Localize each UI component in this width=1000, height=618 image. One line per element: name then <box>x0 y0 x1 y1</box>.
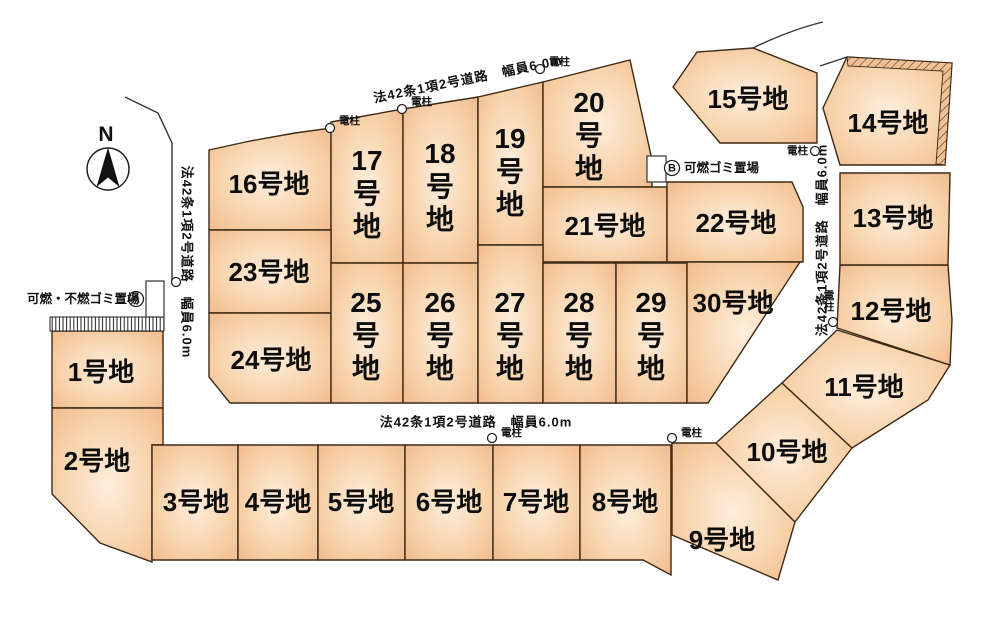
plot-25-label: 25号地 <box>350 287 381 384</box>
utility-pole-label: 電柱 <box>681 426 702 439</box>
plot-23-label: 23号地 <box>229 257 310 287</box>
garbage-station-label: 可燃ゴミ置場 <box>684 160 760 175</box>
utility-pole-label: 電柱 <box>824 290 835 313</box>
compass-north-label: N <box>98 123 113 146</box>
plot-1-label: 1号地 <box>68 357 134 387</box>
site-plan-map: 1号地2号地3号地4号地5号地6号地7号地8号地9号地10号地11号地12号地1… <box>0 0 1000 618</box>
plot-16-label: 16号地 <box>229 169 310 199</box>
utility-pole-label: 電柱 <box>549 55 570 68</box>
utility-pole-3: 電柱 <box>787 144 820 157</box>
plot-28-label: 28号地 <box>563 287 594 384</box>
utility-pole-icon <box>172 278 181 287</box>
utility-pole-label: 電柱 <box>339 114 360 127</box>
plot-22-label: 22号地 <box>696 208 777 238</box>
plot-29-label: 29号地 <box>635 287 666 384</box>
plot-24-label: 24号地 <box>231 345 312 375</box>
utility-pole-icon <box>668 434 677 443</box>
utility-pole-icon <box>829 318 838 327</box>
garbage-box-outline <box>146 281 164 317</box>
plot-11-label: 11号地 <box>824 372 904 402</box>
utility-pole-icon <box>811 147 820 156</box>
plot-10-label: 10号地 <box>747 437 828 467</box>
road-label-1: 法42条1項2号道路 幅員6.0m <box>180 166 195 359</box>
plot-17-label: 17号地 <box>351 145 382 242</box>
plot-3-label: 3号地 <box>163 487 229 517</box>
plot-8-label: 8号地 <box>592 487 658 517</box>
plot-7-label: 7号地 <box>503 487 569 517</box>
plot-15-label: 15号地 <box>708 84 789 114</box>
plot-27-label: 27号地 <box>494 287 525 384</box>
utility-pole-label: 電柱 <box>501 426 522 439</box>
plot-21-label: 21号地 <box>565 211 646 241</box>
garbage-box-outline <box>647 156 666 182</box>
garbage-hatch-strip <box>50 317 164 331</box>
utility-pole-icon <box>326 124 335 133</box>
plot-5-label: 5号地 <box>328 487 394 517</box>
utility-pole-icon <box>536 65 545 74</box>
plot-18-label: 18号地 <box>424 138 455 235</box>
plot-9-label: 9号地 <box>689 525 755 555</box>
site-plan-page: 1号地2号地3号地4号地5号地6号地7号地8号地9号地10号地11号地12号地1… <box>0 0 1000 618</box>
plot-26-label: 26号地 <box>424 287 455 384</box>
utility-pole-label: 電柱 <box>411 95 432 108</box>
plot-6-label: 6号地 <box>416 487 482 517</box>
plot-20-label: 20号地 <box>573 87 604 184</box>
plot-13-label: 13号地 <box>853 203 934 233</box>
plot-14-label: 14号地 <box>848 108 929 138</box>
utility-pole-icon <box>488 434 497 443</box>
utility-pole-7 <box>172 278 181 287</box>
utility-pole-icon <box>398 105 407 114</box>
plot-30-label: 30号地 <box>693 288 774 318</box>
plot-2-label: 2号地 <box>64 446 130 476</box>
garbage-station-label: 可燃・不燃ゴミ置場 <box>27 291 140 306</box>
plot-19-label: 19号地 <box>494 123 525 220</box>
road-label-3: 法42条1項2号道路 幅員6.0m <box>380 415 573 430</box>
plot-12-label: 12号地 <box>851 296 932 326</box>
plot-4-label: 4号地 <box>245 487 311 517</box>
utility-pole-label: 電柱 <box>787 144 808 157</box>
garbage-badge-letter: B <box>668 163 676 175</box>
